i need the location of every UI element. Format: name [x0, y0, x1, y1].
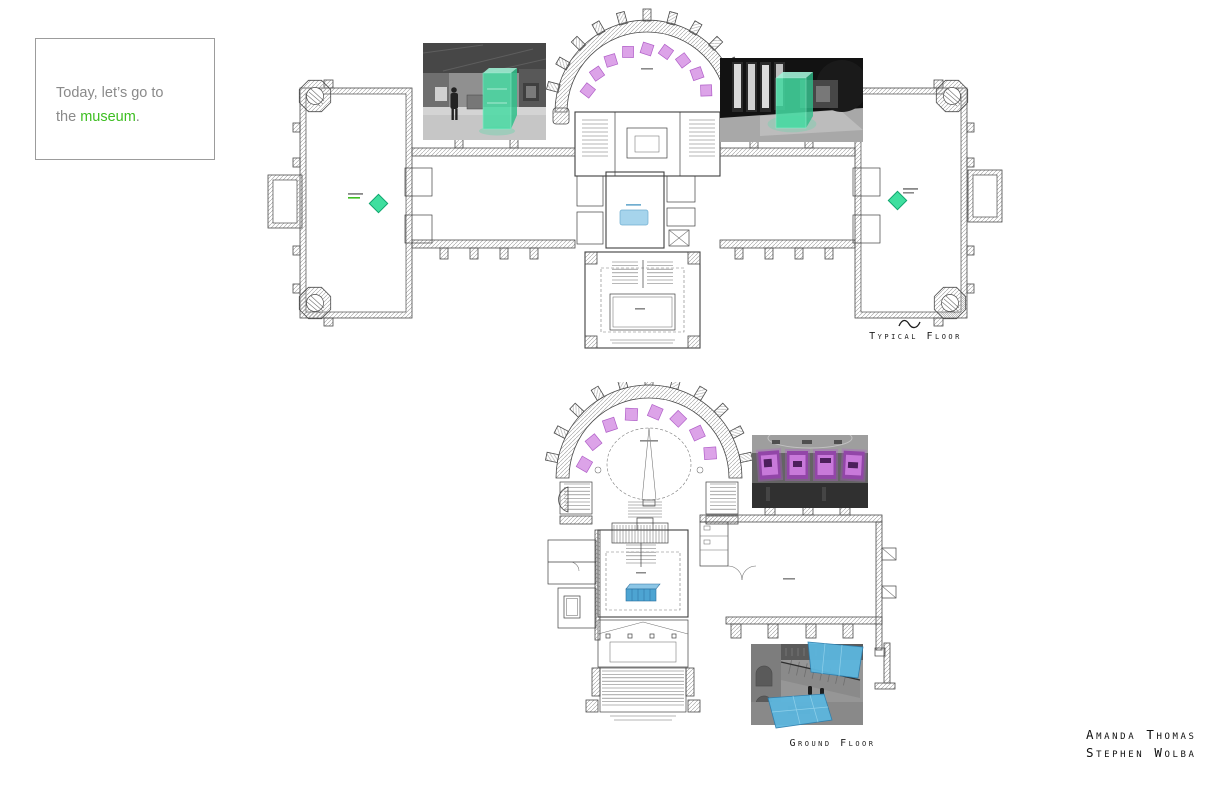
artwork-marker-icon: [701, 85, 712, 96]
blue-stage-highlight: [626, 584, 660, 601]
gallery-photo-display-case-left: [423, 43, 546, 145]
artwork-marker-icon: [640, 42, 654, 56]
gallery-photo-display-case-right: [720, 58, 863, 147]
artwork-marker-icon: [625, 408, 638, 421]
slide-page: Today, let’s go to the museum.: [0, 0, 1224, 792]
corner-tower-icon: [299, 80, 330, 111]
west-annex-rooms: [548, 530, 600, 640]
quote-text: Today, let’s go to the museum.: [36, 39, 214, 129]
scale-squiggle-icon: [898, 318, 926, 330]
artwork-marker-icon: [589, 66, 604, 81]
artwork-marker-icon: [602, 417, 617, 432]
corner-tower-icon: [936, 80, 967, 111]
atrium-opening: [620, 210, 648, 225]
artwork-marker-icon: [604, 54, 618, 68]
quote-line2-pre: the: [56, 109, 80, 125]
rotunda-gallery-photo: [752, 435, 868, 513]
rotunda: [546, 9, 747, 124]
east-wing: [855, 80, 1002, 326]
artwork-marker-icon: [689, 425, 705, 441]
vestibule-and-steps: [586, 620, 700, 720]
artwork-marker-icon: [675, 53, 690, 68]
ground-floor-label: Ground Floor: [775, 738, 890, 749]
typical-floor-label: Typical Floor: [858, 331, 973, 342]
artwork-marker-icon: [576, 456, 592, 472]
artwork-marker-icon: [647, 404, 663, 420]
staircase-photo-with-blue-planes: [748, 640, 880, 737]
artwork-marker-icon: [658, 44, 673, 59]
quote-box: Today, let’s go to the museum.: [35, 38, 215, 160]
quote-line1: Today, let’s go to: [56, 85, 163, 101]
quote-highlight: museum: [80, 109, 136, 125]
artwork-marker-icon: [580, 83, 595, 98]
artwork-marker-icon: [670, 410, 687, 427]
artwork-marker-icon: [704, 447, 717, 460]
rotunda: [545, 382, 752, 524]
corner-tower-icon: [299, 287, 330, 318]
corner-tower-icon: [934, 287, 965, 318]
artwork-marker-icon: [623, 46, 634, 57]
artwork-marker-icon: [585, 434, 602, 451]
artwork-marker-icon: [690, 67, 704, 81]
credit-author-1: Amanda Thomas: [1086, 726, 1197, 744]
south-pavilion: [585, 252, 700, 348]
credits: Amanda Thomas Stephen Wolba: [1086, 726, 1197, 762]
west-wing: [268, 80, 412, 326]
credit-author-2: Stephen Wolba: [1086, 744, 1197, 762]
entrance-hall: [598, 502, 688, 617]
green-display-case-highlight: [479, 68, 517, 136]
typical-floor-plan: [255, 8, 1015, 353]
rotunda-artwork-markers: [580, 42, 712, 98]
quote-line2-post: .: [136, 109, 140, 125]
